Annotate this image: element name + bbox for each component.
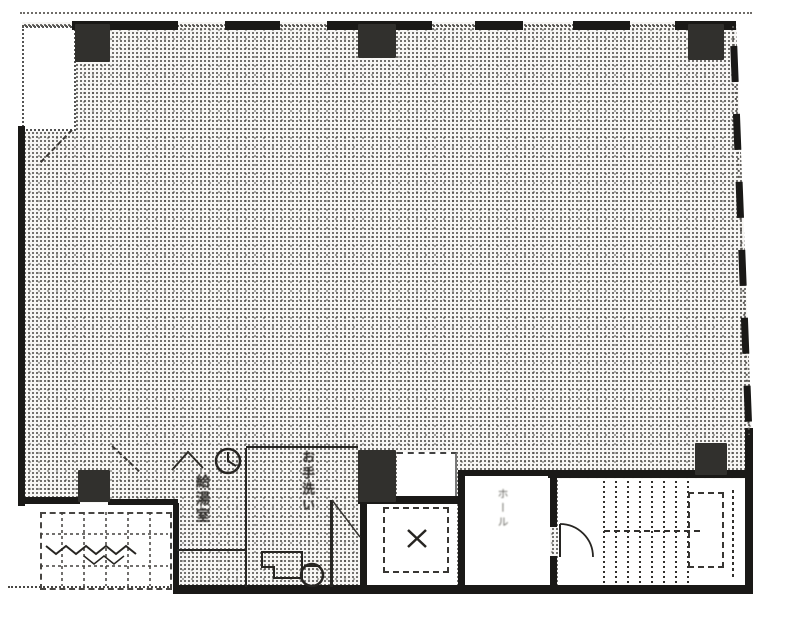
elevator-car-symbol: [408, 530, 426, 547]
floor-plan-canvas: 給湯室 お手洗い ホール: [0, 0, 787, 620]
toilet-door-diagonal: [332, 500, 360, 537]
window-line-right: [733, 26, 749, 435]
fan-icon-blade: [228, 452, 236, 466]
plan-linework: [0, 0, 787, 620]
sink-counter-outline: [262, 552, 302, 578]
left-exit-door-swing: [112, 446, 141, 473]
toilet-bowl-icon: [301, 564, 323, 586]
balcony-door-swing: [40, 130, 72, 163]
external-stair-zigzag-2: [84, 556, 124, 564]
external-stair-treads: [40, 512, 168, 586]
external-stair-zigzag: [46, 546, 136, 554]
elevator-hall-label: ホール: [494, 488, 510, 530]
stair-door-swing-arc: [560, 524, 593, 557]
kitchenette-label: 給湯室: [193, 474, 213, 525]
kitchenette-door-swing: [172, 452, 203, 470]
toilet-label: お手洗い: [298, 450, 317, 514]
